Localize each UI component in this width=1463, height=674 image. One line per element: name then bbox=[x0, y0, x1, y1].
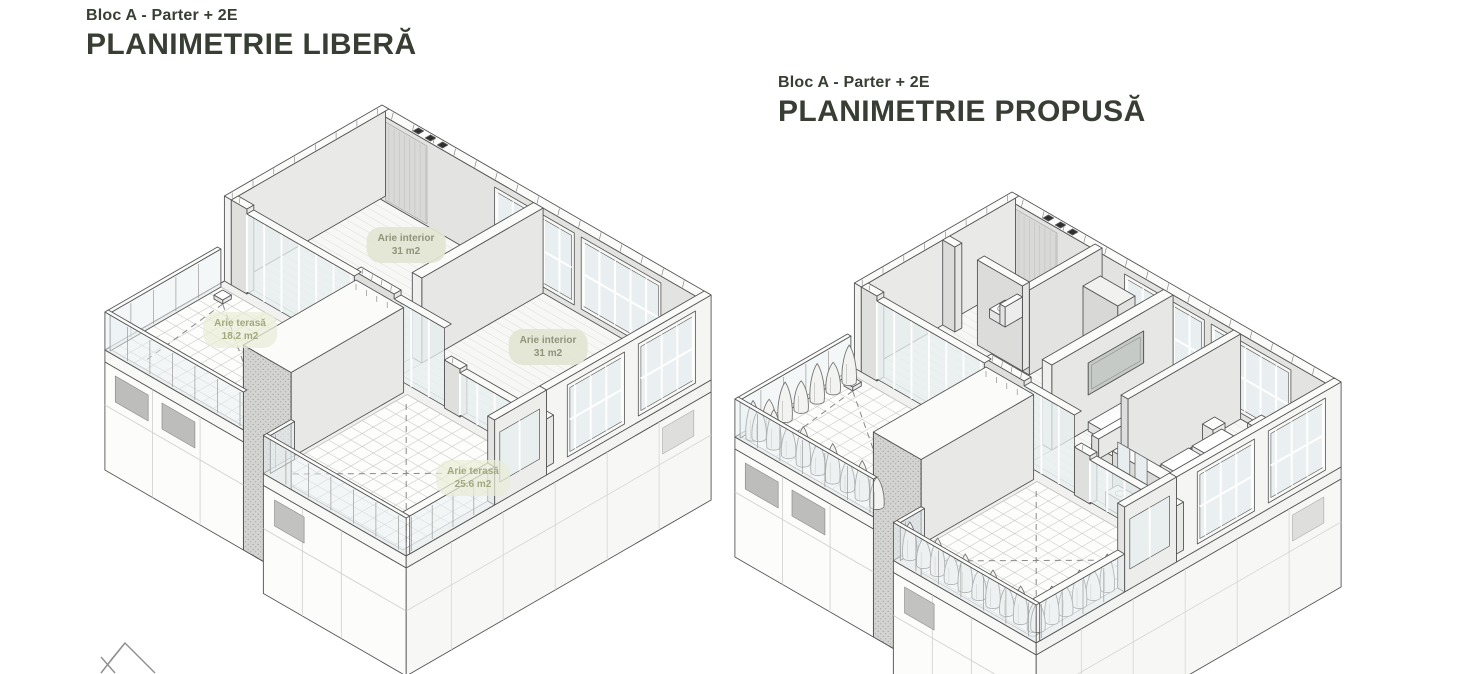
left-plan-subtitle: Bloc A - Parter + 2E bbox=[86, 7, 417, 25]
slide-canvas: Bloc A - Parter + 2E PLANIMETRIE LIBERĂ … bbox=[0, 0, 1463, 674]
left-floorplan-illustration bbox=[82, 78, 722, 674]
right-floorplan-illustration bbox=[712, 165, 1352, 674]
left-plan-title: PLANIMETRIE LIBERĂ bbox=[86, 28, 417, 62]
area-label-terrace-left: Arie terasă 18.2 m2 bbox=[203, 312, 277, 348]
right-plan-header: Bloc A - Parter + 2E PLANIMETRIE PROPUSĂ bbox=[778, 74, 1146, 129]
right-plan-title: PLANIMETRIE PROPUSĂ bbox=[778, 95, 1146, 129]
mountain-logo-icon bbox=[98, 640, 158, 674]
area-label-room-a: Arie interior 31 m2 bbox=[367, 227, 446, 263]
left-plan-header: Bloc A - Parter + 2E PLANIMETRIE LIBERĂ bbox=[86, 7, 417, 62]
area-label-terrace-bottom: Arie terasă 25.6 m2 bbox=[436, 460, 510, 496]
right-plan-subtitle: Bloc A - Parter + 2E bbox=[778, 74, 1146, 92]
area-label-room-b: Arie interior 31 m2 bbox=[509, 329, 588, 365]
